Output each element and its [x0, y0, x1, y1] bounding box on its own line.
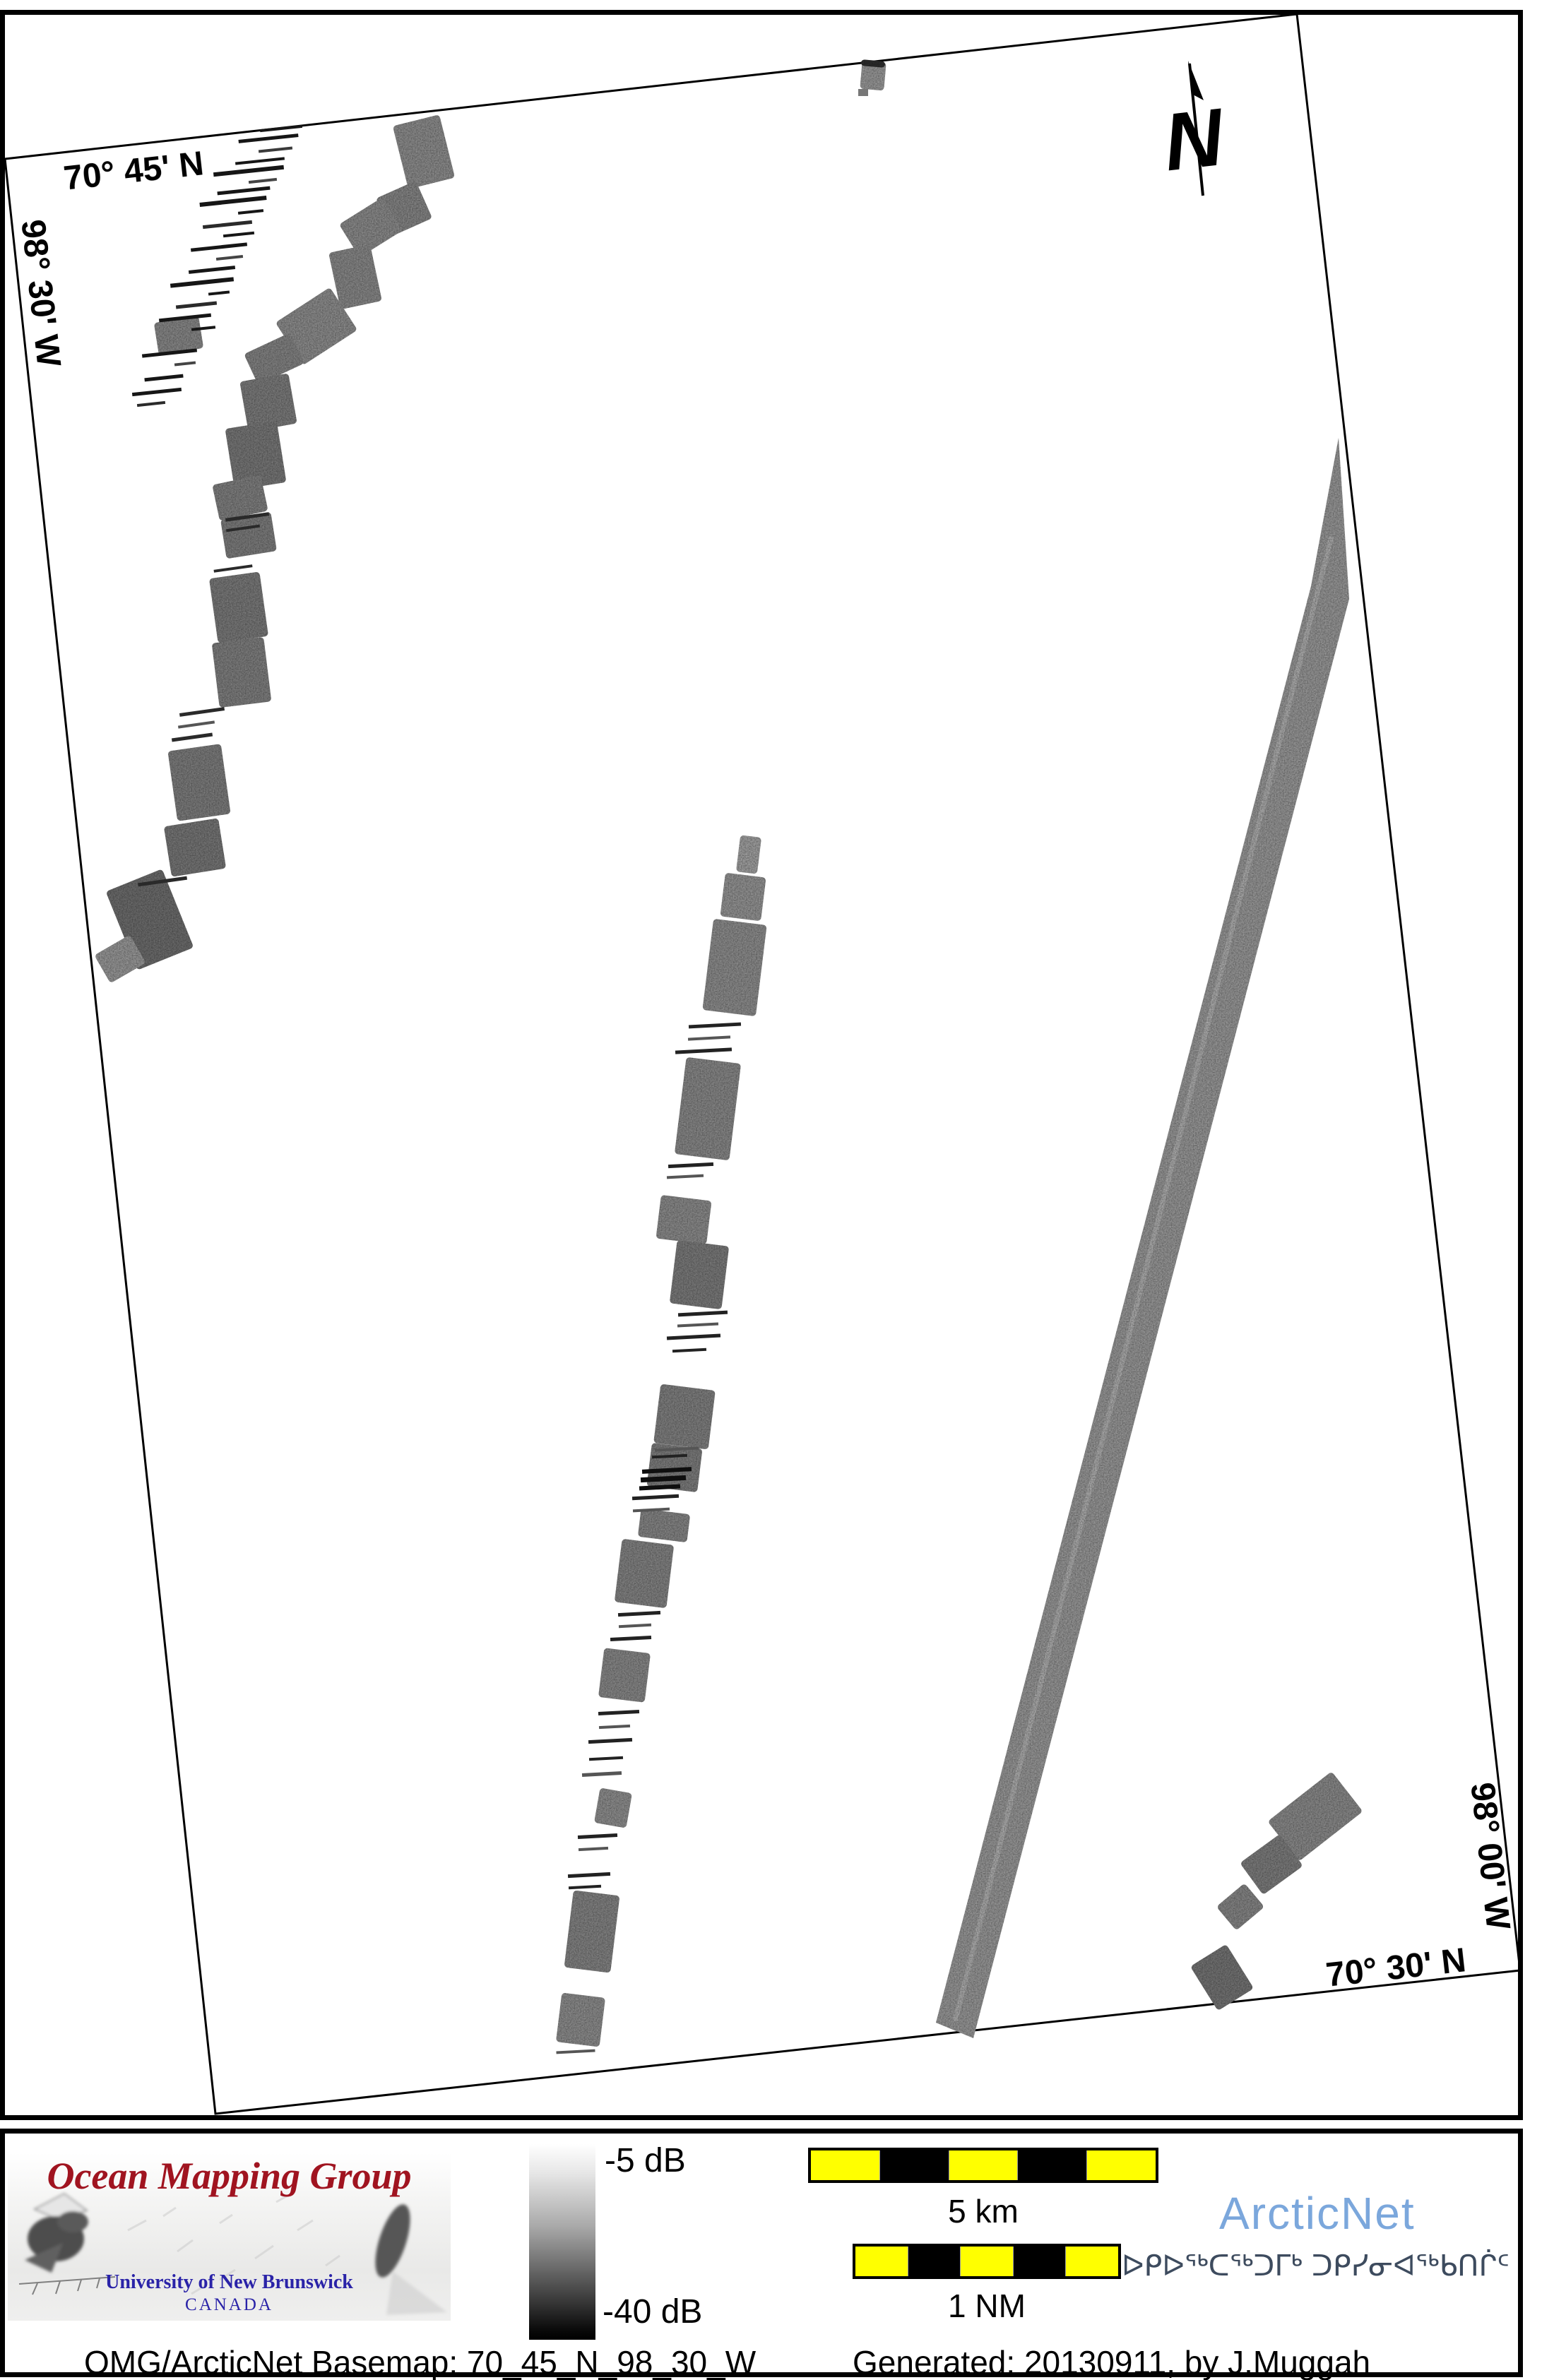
sonar-sliver: [238, 133, 298, 143]
scalebar-5km: [808, 2148, 1158, 2183]
sonar-swath-segment: [393, 114, 455, 189]
sonar-swath-segment: [167, 744, 230, 821]
sonar-sliver: [667, 1174, 704, 1179]
scalebar-segment: [879, 2150, 949, 2180]
sonar-swath-segment: [212, 637, 272, 708]
north-arrow-label: N: [1159, 92, 1230, 189]
sonar-sliver: [216, 255, 243, 261]
scalebar-segment: [1013, 2247, 1066, 2276]
sonar-bird-blob-icon: [25, 2194, 88, 2273]
sonar-swath-segment: [638, 1509, 690, 1542]
sonar-sliver: [213, 165, 284, 177]
sonar-sliver: [599, 1725, 630, 1729]
scalebar-segment: [1065, 2247, 1118, 2276]
sonar-sliver: [582, 1771, 622, 1777]
scalebar-1nm-label: 1 NM: [853, 2290, 1121, 2322]
sonar-sliver: [618, 1611, 660, 1617]
sonar-sliver: [259, 147, 292, 153]
sonar-sliver: [176, 301, 217, 309]
sonar-sliver: [858, 89, 868, 96]
sonar-swath-segment: [656, 1195, 711, 1244]
long-survey-track: [936, 438, 1349, 2038]
scalebar-5km-label: 5 km: [808, 2195, 1158, 2227]
sonar-swath-segment: [736, 835, 761, 874]
longitude-label-right: 98° 00' W: [1463, 1780, 1517, 1932]
omg-university: University of New Brunswick: [8, 2271, 451, 2294]
sonar-sliver: [678, 1311, 728, 1317]
scalebar-segment: [855, 2247, 908, 2276]
sonar-sliver: [191, 242, 247, 251]
sonar-sliver: [172, 732, 213, 742]
sonar-swath-segment: [653, 1384, 716, 1450]
sonar-sliver: [689, 1023, 741, 1029]
arcticnet-inuktitut-name: ᐅᑭᐅᖅᑕᖅᑐᒥᒃ ᑐᑭᓯᓂᐊᖅᑲᑎᒌᑦ: [1122, 2251, 1509, 2280]
backscatter-colorbar: [529, 2144, 595, 2340]
sonar-sliver: [668, 1162, 713, 1168]
sonar-sliver: [174, 361, 196, 366]
arcticnet-wordmark: ArcticNet: [1219, 2191, 1416, 2236]
sonar-sliver: [132, 388, 182, 396]
sonar-swath-segment: [615, 1539, 674, 1608]
sonar-swath-layer: [94, 59, 1363, 2047]
sonar-sliver: [588, 1738, 632, 1744]
scalebar-1nm: [853, 2244, 1121, 2279]
sonar-sliver: [632, 1494, 679, 1500]
latitude-label-bottom: 70° 30' N: [1324, 1941, 1468, 1994]
sonar-sliver: [688, 1035, 730, 1040]
basemap-page: N 70° 45' N 98° 30' W 70° 30' N 98° 00' …: [0, 0, 1554, 2380]
sonar-sliver: [238, 209, 263, 215]
omg-country: CANADA: [8, 2295, 451, 2315]
sonar-swath-segment: [670, 1240, 729, 1309]
sonar-sliver: [672, 1348, 706, 1353]
sonar-sliver: [260, 125, 302, 132]
sonar-sliver: [217, 186, 270, 196]
north-arrow: N: [1159, 61, 1230, 196]
sonar-swath-segment: [702, 919, 766, 1016]
scalebar-segment: [949, 2150, 1018, 2180]
omg-logo: Ocean Mapping Group University of New Br…: [8, 2153, 451, 2321]
sonar-sliver: [203, 220, 252, 229]
sonar-sliver: [235, 157, 285, 165]
long-survey-track-core: [955, 537, 1331, 2021]
sonar-sliver: [568, 1872, 610, 1878]
sonar-sliver: [589, 1756, 623, 1761]
omg-title: Ocean Mapping Group: [8, 2154, 451, 2198]
sonar-sliver: [144, 374, 183, 382]
sonar-swath-segment: [598, 1648, 651, 1703]
sonar-swath-segment: [564, 1890, 620, 1973]
sonar-sliver: [610, 1636, 651, 1641]
sonar-sliver: [667, 1334, 720, 1340]
longitude-label-left: 98° 30' W: [13, 218, 67, 369]
sonar-sliver: [578, 1833, 617, 1839]
sonar-sliver: [208, 290, 230, 295]
sonar-sliver: [137, 401, 165, 407]
sonar-sliver: [170, 277, 234, 287]
sonar-sliver: [189, 266, 235, 274]
sonar-sliver: [598, 1710, 639, 1715]
sonar-swath-segment: [556, 1992, 605, 2047]
sonar-sliver: [179, 707, 225, 717]
sonar-sliver: [178, 720, 215, 728]
basemap-caption: OMG/ArcticNet Basemap: 70_45_N_98_30_W: [84, 2346, 756, 2379]
sonar-swath-segment: [164, 818, 226, 876]
sonar-swath-segment: [1216, 1883, 1264, 1930]
scalebar-segment: [1086, 2150, 1156, 2180]
sonar-sliver: [556, 2049, 595, 2054]
colorbar-max-label: -5 dB: [605, 2144, 686, 2178]
sonar-sliver: [677, 1322, 718, 1327]
sonar-sliver: [675, 1047, 732, 1054]
sonar-sliver: [579, 1847, 608, 1851]
long-survey-track-band: [936, 438, 1349, 2038]
sonar-swath-segment: [720, 873, 766, 922]
scalebar-segment: [960, 2247, 1013, 2276]
sonar-sliver: [569, 1885, 601, 1889]
scalebar-segment: [1017, 2150, 1086, 2180]
latitude-label-top: 70° 45' N: [62, 145, 206, 198]
map-canvas: N 70° 45' N 98° 30' W 70° 30' N 98° 00' …: [0, 0, 1554, 2380]
scalebar-segment: [908, 2247, 961, 2276]
sonar-swath-segment: [209, 571, 268, 643]
sonar-sliver: [619, 1624, 651, 1628]
sonar-sliver: [223, 232, 254, 238]
neatline-border: [5, 14, 1520, 2114]
sonar-sliver: [249, 178, 277, 184]
colorbar-min-label: -40 dB: [603, 2295, 702, 2329]
sonar-swath-segment: [594, 1787, 632, 1828]
generated-caption: Generated: 20130911, by J.Muggah: [853, 2346, 1370, 2379]
sonar-sliver: [199, 196, 266, 207]
sonar-sliver: [213, 564, 252, 573]
sonar-swath-segment: [675, 1057, 741, 1160]
scalebar-segment: [811, 2150, 879, 2180]
